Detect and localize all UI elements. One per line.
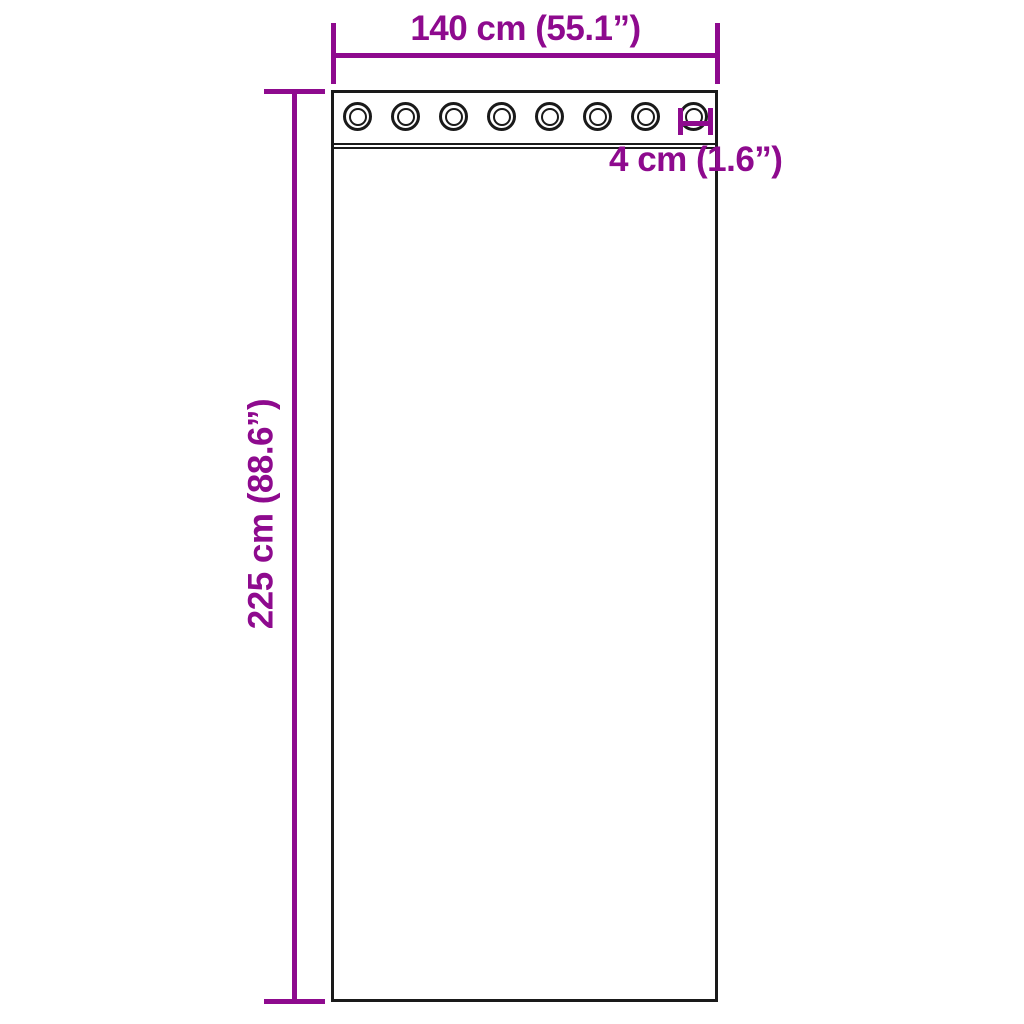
height-dimension-tick-top <box>264 89 325 94</box>
grommet-outer-ring <box>631 102 660 131</box>
grommet-outer-ring <box>679 102 708 131</box>
grommet-outer-ring <box>343 102 372 131</box>
grommet-diameter-label: 4 cm (1.6”) <box>609 142 782 177</box>
grommet-inner-ring <box>589 108 607 126</box>
grommet-outer-ring <box>535 102 564 131</box>
grommet-diameter-bracket-tick-right <box>708 108 713 135</box>
grommet-outer-ring <box>391 102 420 131</box>
grommet-inner-ring <box>349 108 367 126</box>
diagram-canvas: 140 cm (55.1”) 225 cm (88.6”) 4 cm (1.6”… <box>0 0 1024 1024</box>
grommet-outer-ring <box>439 102 468 131</box>
grommet-inner-ring <box>493 108 511 126</box>
width-dimension-line <box>333 53 718 58</box>
grommet-inner-ring <box>541 108 559 126</box>
curtain-panel <box>331 90 718 1002</box>
grommet-outer-ring <box>583 102 612 131</box>
height-dimension-line <box>292 90 297 1002</box>
grommet-row <box>343 102 708 131</box>
grommet-inner-ring <box>397 108 415 126</box>
grommet-inner-ring <box>637 108 655 126</box>
grommet-inner-ring <box>445 108 463 126</box>
width-dimension-label: 140 cm (55.1”) <box>333 11 718 46</box>
height-dimension-tick-bottom <box>264 999 325 1004</box>
grommet-diameter-bracket-tick-left <box>678 108 683 135</box>
height-dimension-label: 225 cm (88.6”) <box>244 399 279 629</box>
grommet-outer-ring <box>487 102 516 131</box>
